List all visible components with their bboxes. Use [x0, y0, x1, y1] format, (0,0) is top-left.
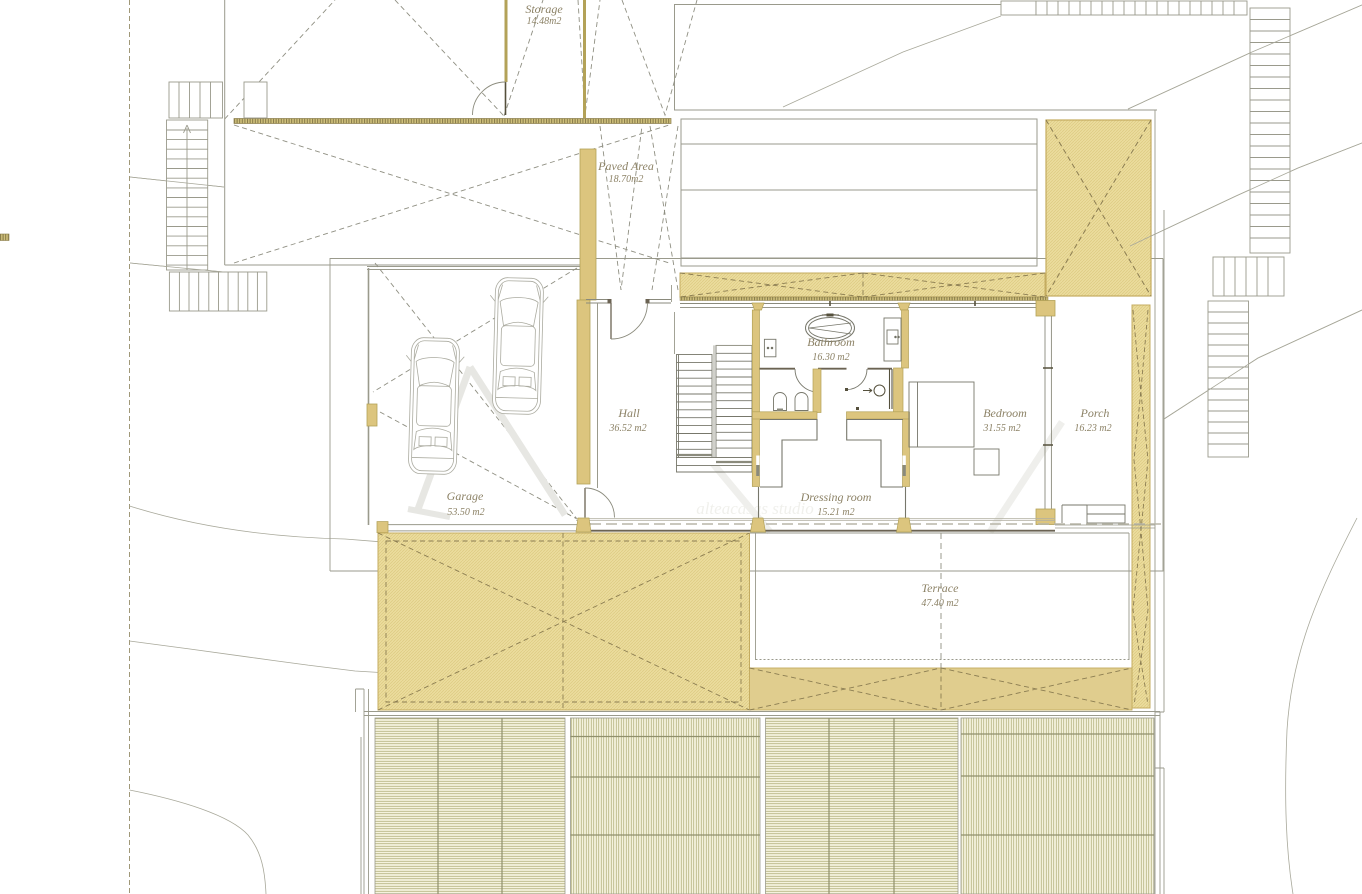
- svg-text:36.52 m2: 36.52 m2: [608, 423, 646, 434]
- svg-text:Porch: Porch: [1080, 406, 1110, 420]
- svg-text:18.70m2: 18.70m2: [609, 174, 644, 185]
- svg-text:47.40 m2: 47.40 m2: [921, 598, 958, 609]
- svg-text:Paved Area: Paved Area: [597, 159, 654, 173]
- svg-text:16.30 m2: 16.30 m2: [812, 352, 849, 363]
- svg-text:Storage: Storage: [525, 2, 563, 16]
- svg-text:14.48m2: 14.48m2: [527, 16, 562, 27]
- svg-text:Bathroom: Bathroom: [807, 335, 855, 349]
- svg-text:Terrace: Terrace: [922, 581, 960, 595]
- svg-text:31.55 m2: 31.55 m2: [982, 423, 1020, 434]
- svg-text:Dressing room: Dressing room: [800, 490, 872, 504]
- svg-text:Garage: Garage: [447, 489, 484, 503]
- svg-text:15.21 m2: 15.21 m2: [817, 507, 854, 518]
- svg-text:Hall: Hall: [617, 406, 640, 420]
- svg-text:16.23 m2: 16.23 m2: [1074, 423, 1111, 434]
- svg-text:alteacasas studio: alteacasas studio: [696, 499, 814, 518]
- svg-text:Bedroom: Bedroom: [983, 406, 1027, 420]
- svg-text:53.50 m2: 53.50 m2: [447, 507, 484, 518]
